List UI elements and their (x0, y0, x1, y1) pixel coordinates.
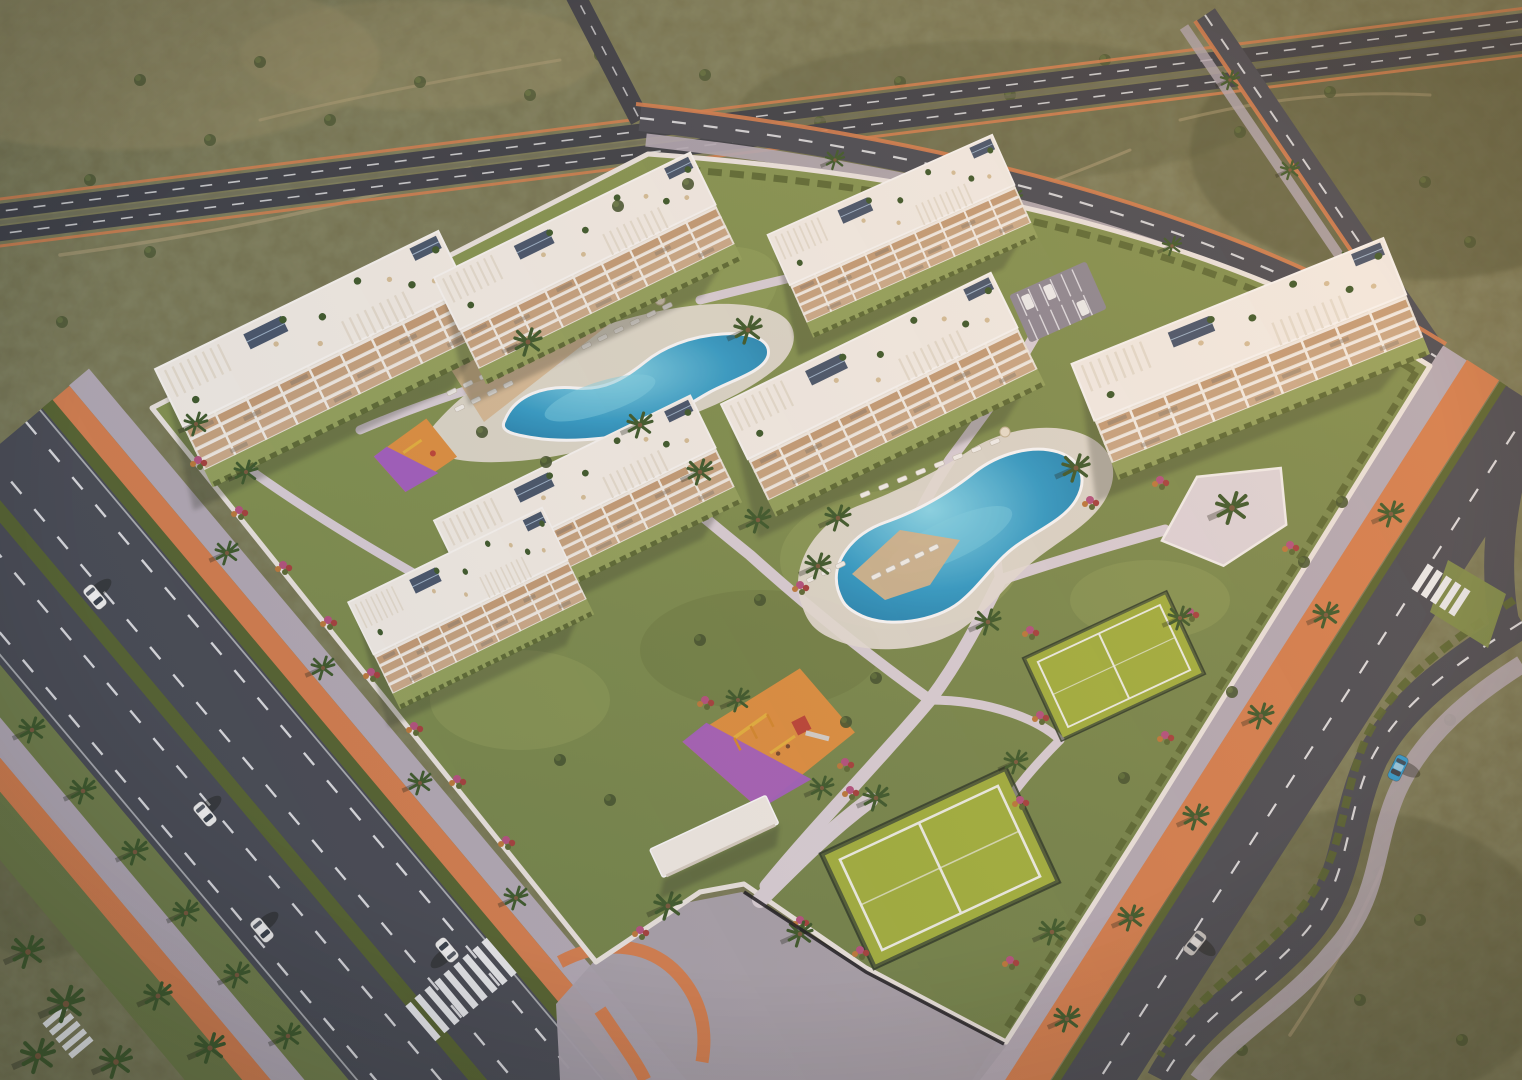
scene-canvas (0, 0, 1522, 1080)
vignette-overlay (0, 0, 1522, 1080)
aerial-render (0, 0, 1522, 1080)
